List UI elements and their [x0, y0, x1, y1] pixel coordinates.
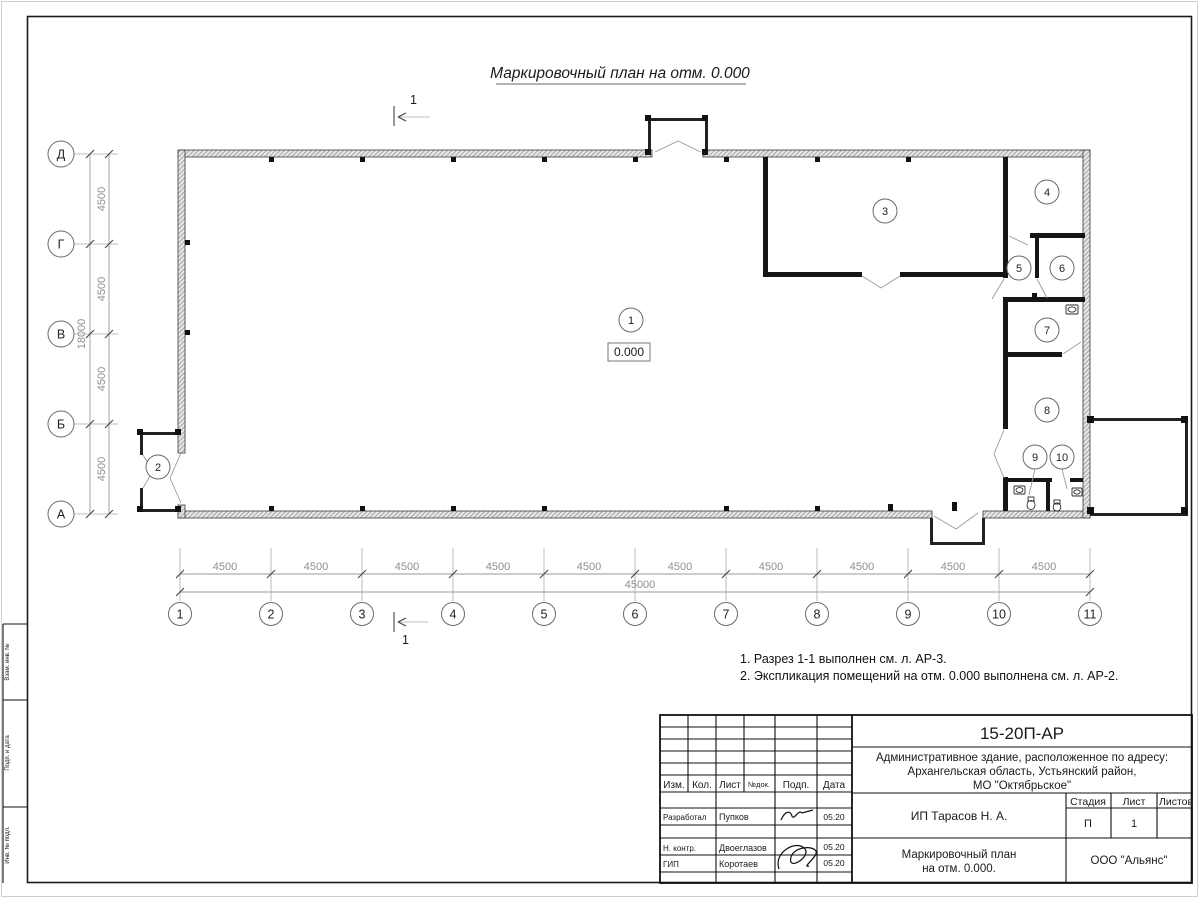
dim-bottom-3: 4500 — [395, 561, 419, 573]
dim-bottom-total: 45000 — [625, 579, 656, 591]
plan-canvas: Взам. инв. № Подп. и дата Инв. № подл. М… — [0, 0, 1200, 900]
dim-bottom-2: 4500 — [304, 561, 328, 573]
room-number-3: 3 — [882, 206, 888, 218]
dim-bottom-1: 4500 — [213, 561, 237, 573]
room-number-4: 4 — [1044, 187, 1050, 199]
axis-10: 10 — [992, 608, 1006, 622]
axis-5: 5 — [541, 608, 548, 622]
tb-date-3: 05.20 — [823, 858, 845, 868]
axis-1: 1 — [177, 608, 184, 622]
axis-9: 9 — [905, 608, 912, 622]
dim-left-2: 4500 — [96, 277, 108, 301]
axis-left-g: Г — [58, 238, 65, 252]
dim-bottom-6: 4500 — [668, 561, 692, 573]
dim-bottom-7: 4500 — [759, 561, 783, 573]
tb-name-1: Пупков — [719, 812, 749, 822]
axis-left-d: Д — [57, 148, 66, 162]
tb-col-data: Дата — [823, 780, 846, 791]
tb-name-3: Коротаев — [719, 859, 758, 869]
tb-stage-value: П — [1084, 818, 1092, 830]
tb-drawing-title-2: на отм. 0.000. — [922, 863, 996, 875]
room-number-2: 2 — [155, 462, 161, 474]
tb-col-list: Лист — [719, 780, 741, 791]
room-number-9: 9 — [1032, 452, 1038, 464]
tb-role-2: Н. контр. — [663, 844, 696, 853]
dim-bottom-10: 4500 — [1032, 561, 1056, 573]
dim-left-total: 18000 — [76, 319, 88, 350]
axis-2: 2 — [268, 608, 275, 622]
tb-stage-label: Стадия — [1070, 796, 1106, 808]
tb-col-ndok: №док. — [748, 780, 770, 789]
tb-sheet-value: 1 — [1131, 818, 1137, 830]
section-label-bottom: 1 — [402, 633, 409, 647]
dim-bottom-4: 4500 — [486, 561, 510, 573]
dim-left-3: 4500 — [96, 367, 108, 391]
axis-3: 3 — [359, 608, 366, 622]
axis-7: 7 — [723, 608, 730, 622]
room-number-10: 10 — [1056, 452, 1068, 464]
page-title: Маркировочный план на отм. 0.000 — [490, 65, 750, 82]
axis-8: 8 — [814, 608, 821, 622]
tb-client: ИП Тарасов Н. А. — [911, 809, 1008, 823]
side-label-1: Взам. инв. № — [4, 643, 11, 680]
tb-drawing-title-1: Маркировочный план — [902, 849, 1017, 861]
tb-date-1: 05.20 — [823, 812, 845, 822]
tb-sheet-label: Лист — [1123, 796, 1146, 808]
tb-address-1: Административное здание, расположенное п… — [876, 752, 1168, 764]
room-number-7: 7 — [1044, 325, 1050, 337]
room-number-5: 5 — [1016, 263, 1022, 275]
tb-col-kol: Кол. — [692, 780, 712, 791]
tb-role-1: Разработал — [663, 813, 707, 822]
axis-left-a: А — [57, 508, 66, 522]
axis-4: 4 — [450, 608, 457, 622]
side-label-3: Инв. № подл. — [4, 826, 11, 864]
section-label-top: 1 — [410, 93, 417, 107]
axis-left-b: Б — [57, 418, 65, 432]
drawing-sheet: Взам. инв. № Подп. и дата Инв. № подл. М… — [0, 0, 1200, 900]
tb-name-2: Двоеглазов — [719, 843, 767, 853]
axis-left-v: В — [57, 328, 65, 342]
tb-col-izm: Изм. — [663, 780, 684, 791]
axis-11: 11 — [1084, 608, 1097, 622]
room-number-1: 1 — [628, 315, 634, 327]
note-line-1: 1. Разрез 1-1 выполнен см. л. АР-3. — [740, 652, 947, 666]
dim-left-1: 4500 — [96, 187, 108, 211]
side-label-2: Подп. и дата — [5, 735, 11, 771]
dim-bottom-9: 4500 — [941, 561, 965, 573]
tb-date-2: 05.20 — [823, 842, 845, 852]
note-line-2: 2. Экспликация помещений на отм. 0.000 в… — [740, 669, 1118, 683]
tb-doc-number: 15-20П-АР — [980, 724, 1064, 743]
elevation-value: 0.000 — [614, 345, 644, 359]
tb-address-2: Архангельская область, Устьянский район, — [908, 766, 1137, 778]
drawing-title: Маркировочный план на отм. 0.000 — [490, 65, 750, 84]
elevation-marker: 0.000 — [608, 343, 650, 361]
axis-6: 6 — [632, 608, 639, 622]
tb-col-podp: Подп. — [783, 780, 810, 791]
dim-left-4: 4500 — [96, 457, 108, 481]
room-number-6: 6 — [1059, 263, 1065, 275]
tb-company: ООО "Альянс" — [1091, 855, 1168, 867]
tb-address-3: МО "Октябрьское" — [973, 780, 1071, 792]
dim-bottom-8: 4500 — [850, 561, 874, 573]
room-number-8: 8 — [1044, 405, 1050, 417]
tb-role-3: ГИП — [663, 860, 679, 869]
tb-sheets-label: Листов — [1159, 796, 1194, 808]
dim-bottom-5: 4500 — [577, 561, 601, 573]
